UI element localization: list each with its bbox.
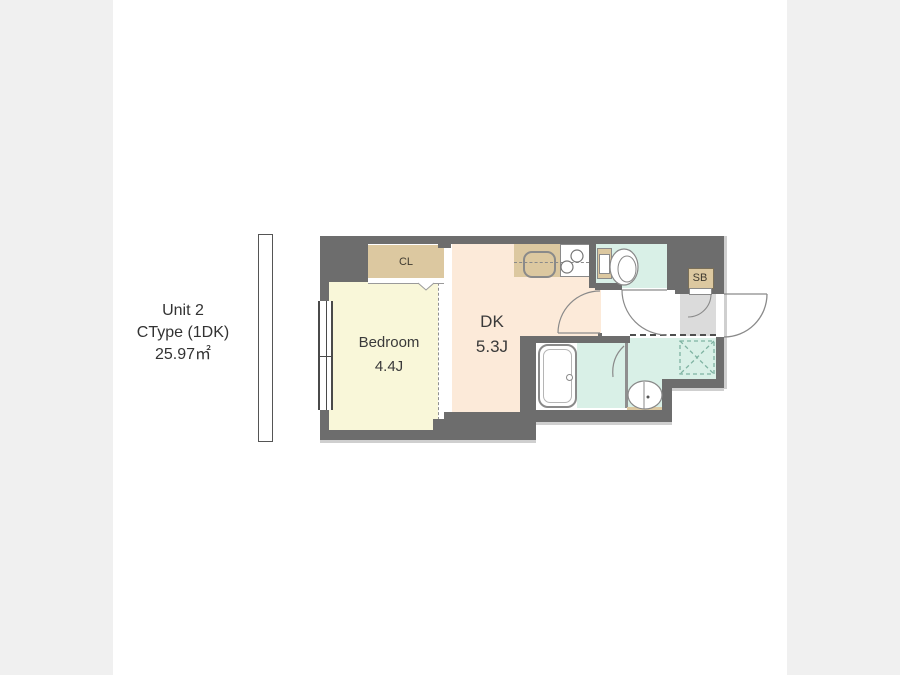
hallway-floor — [601, 288, 680, 336]
dk-size: 5.3J — [476, 334, 508, 359]
dk-name: DK — [476, 309, 508, 334]
closet-door-strip — [368, 278, 444, 284]
wall-bathroom-top — [530, 336, 630, 343]
dk-label: DK 5.3J — [476, 309, 508, 359]
outline-shadow — [724, 236, 727, 389]
unit-number: Unit 2 — [137, 300, 229, 322]
bathtub-drain — [566, 374, 573, 381]
bedroom-label: Bedroom 4.4J — [359, 331, 420, 379]
wall-bedroom-top-block — [329, 244, 368, 282]
kitchen-upper-cabinet-dashed-line — [514, 262, 589, 263]
wall-bottom-dk — [444, 412, 536, 440]
shoe-box-label: SB — [693, 272, 708, 284]
wall-hall-doorpost — [598, 333, 602, 336]
unit-info-label: Unit 2 CType (1DK) 25.97㎡ — [137, 300, 229, 366]
window-mullion — [320, 356, 331, 357]
wall-washer-bottom — [672, 379, 724, 388]
bedroom-window — [318, 301, 333, 410]
washing-machine-area-floor — [667, 338, 716, 379]
bathroom-washroom-wall — [625, 343, 628, 408]
bathroom-floor-mint — [577, 343, 625, 408]
unit-type: CType (1DK) — [137, 322, 229, 344]
closet-label: CL — [399, 256, 413, 268]
floor-plan-page: { "page": { "outer_background": "#f0f0f0… — [0, 0, 900, 675]
outline-shadow — [320, 440, 536, 443]
entrance-tile-floor — [680, 290, 716, 336]
wall-top — [320, 236, 724, 244]
outline-shadow — [536, 422, 672, 425]
wall-toilet-bottom — [595, 283, 622, 290]
wall-partition-stub — [438, 236, 451, 248]
bedroom-name: Bedroom — [359, 331, 420, 355]
wall-partition-post — [433, 419, 452, 432]
bathtub — [538, 344, 577, 408]
kitchen-sink — [523, 251, 556, 278]
bedroom-size: 4.4J — [359, 355, 420, 379]
wall-toilet-right — [667, 236, 675, 290]
outline-shadow — [672, 388, 724, 391]
wall-kitchen-toilet-stub — [589, 244, 596, 288]
wall-bathroom-bottom — [536, 410, 672, 422]
wall-bathroom-left — [520, 336, 536, 416]
wall-bottom-bedroom — [320, 430, 444, 440]
toilet-tank-lid — [599, 254, 610, 274]
unit-area: 25.97㎡ — [137, 344, 229, 366]
wall-washroom-right — [662, 379, 672, 422]
entrance-threshold-dashed — [630, 334, 716, 336]
shoe-box-shelf-front — [689, 288, 712, 295]
kitchen-stove — [560, 244, 591, 277]
balcony-rail — [258, 234, 273, 442]
